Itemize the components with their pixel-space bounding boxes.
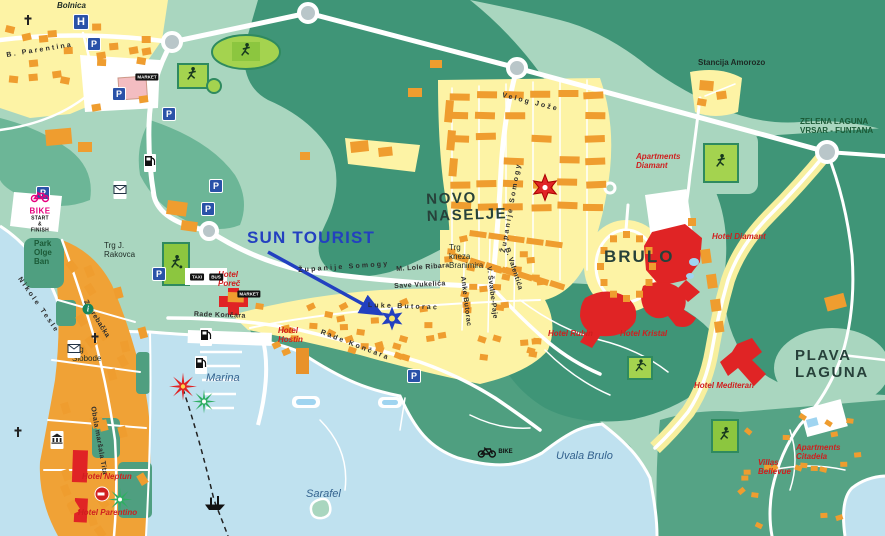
church-icon bbox=[90, 331, 100, 349]
taxi-icon: TAXI bbox=[190, 274, 204, 281]
label-brulo: BRULO bbox=[604, 247, 674, 266]
label-rade-kon-ara: Rade Končara bbox=[194, 311, 246, 321]
parking-icon: P bbox=[87, 37, 101, 51]
red-star-icon bbox=[530, 173, 560, 208]
label-villas: Villas Bellevue bbox=[758, 459, 791, 477]
label-trg: Trg kneza Branimira bbox=[449, 244, 483, 271]
burst-green-icon bbox=[107, 487, 133, 518]
label-save-vukeli-a: Save Vukelića bbox=[394, 280, 446, 291]
runner-icon bbox=[238, 42, 254, 62]
burst-green-icon bbox=[191, 389, 217, 420]
parking-icon: P bbox=[209, 179, 223, 193]
label-stancija-amorozo: Stancija Amorozo bbox=[698, 59, 765, 68]
label-uvala-brulo: Uvala Brulo bbox=[556, 450, 613, 462]
label-bolnica: Bolnica bbox=[57, 2, 86, 11]
church-icon bbox=[23, 13, 33, 31]
label-m-lole-ribara: M. Lole Ribara bbox=[396, 262, 450, 274]
runner-icon bbox=[184, 66, 200, 86]
label-b-parentina: B. Parentina bbox=[6, 41, 74, 59]
label-sarafel: Sarafel bbox=[306, 488, 341, 500]
label-hotel-mediteran: Hotel Mediteran bbox=[694, 382, 754, 391]
parking-icon: P bbox=[112, 87, 126, 101]
label-upanije-somogy: Županije Somogy bbox=[298, 261, 390, 275]
church-icon bbox=[13, 425, 23, 443]
tourist-map: SUN TOURISTNOVO NASELJEBRULOPLAVA LAGUNA… bbox=[0, 0, 885, 536]
label-v-valbe-paje: V. Švalbe-Paje bbox=[484, 266, 498, 319]
label-nikole-tesle: Nikole Tesle bbox=[16, 276, 61, 335]
label-hotel-neptun: Hotel Neptun bbox=[82, 473, 132, 482]
bus-icon: BUS bbox=[209, 274, 223, 281]
parking-icon: P bbox=[201, 202, 215, 216]
museum-icon bbox=[51, 431, 64, 449]
label-marina: Marina bbox=[206, 372, 240, 384]
blue-star-icon bbox=[378, 305, 406, 338]
fuel-icon bbox=[144, 154, 156, 172]
label-hotel-rubin: Hotel Rubin bbox=[548, 330, 593, 339]
label-apartments: Apartments Diamant bbox=[636, 153, 680, 171]
post-icon bbox=[114, 181, 127, 199]
hospital-icon: H bbox=[73, 14, 89, 30]
market-icon: MARKET bbox=[237, 291, 260, 298]
label-plava: PLAVA LAGUNA bbox=[795, 348, 869, 382]
label-apartments: Apartments Citadela bbox=[796, 444, 840, 462]
label-obala-mar-ala-tita: Obala maršala Tita bbox=[88, 406, 108, 476]
label-sun-tourist: SUN TOURIST bbox=[247, 228, 375, 247]
parking-icon: P bbox=[152, 267, 166, 281]
label-velog-jo-e: Velog Jože bbox=[501, 92, 559, 114]
bike-trail-icon: BIKE bbox=[477, 446, 512, 458]
label-park: Park Olge Ban bbox=[34, 240, 52, 267]
tennis-icon bbox=[633, 359, 648, 378]
ship-icon bbox=[203, 494, 227, 517]
label-anke-butorac: Anke Butorac bbox=[458, 276, 472, 327]
label-zelena-laguna: ZELENA LAGUNA VRSAR - FUNTANA bbox=[800, 118, 873, 136]
label-hotel-diamant: Hotel Diamant bbox=[712, 233, 766, 242]
label-hotel: Hotel Hostin bbox=[278, 327, 303, 345]
parking-icon: P bbox=[407, 369, 421, 383]
label-trg-j: Trg J. Rakovca bbox=[104, 242, 135, 260]
label-novo: NOVO NASELJE bbox=[426, 189, 508, 225]
label-hotel-kristal: Hotel Kristal bbox=[620, 330, 667, 339]
soccer-icon bbox=[168, 254, 184, 274]
info-icon: i bbox=[83, 304, 94, 315]
runner-icon bbox=[717, 426, 733, 446]
parking-icon: P bbox=[162, 107, 176, 121]
bike-start-icon: BIKESTART & FINISH bbox=[29, 191, 50, 234]
post-icon bbox=[68, 340, 81, 358]
label-b-valenti-a: B. Valentića bbox=[503, 247, 524, 291]
market-icon: MARKET bbox=[135, 74, 158, 81]
runner-icon bbox=[713, 153, 729, 173]
fuel-icon bbox=[200, 328, 212, 346]
